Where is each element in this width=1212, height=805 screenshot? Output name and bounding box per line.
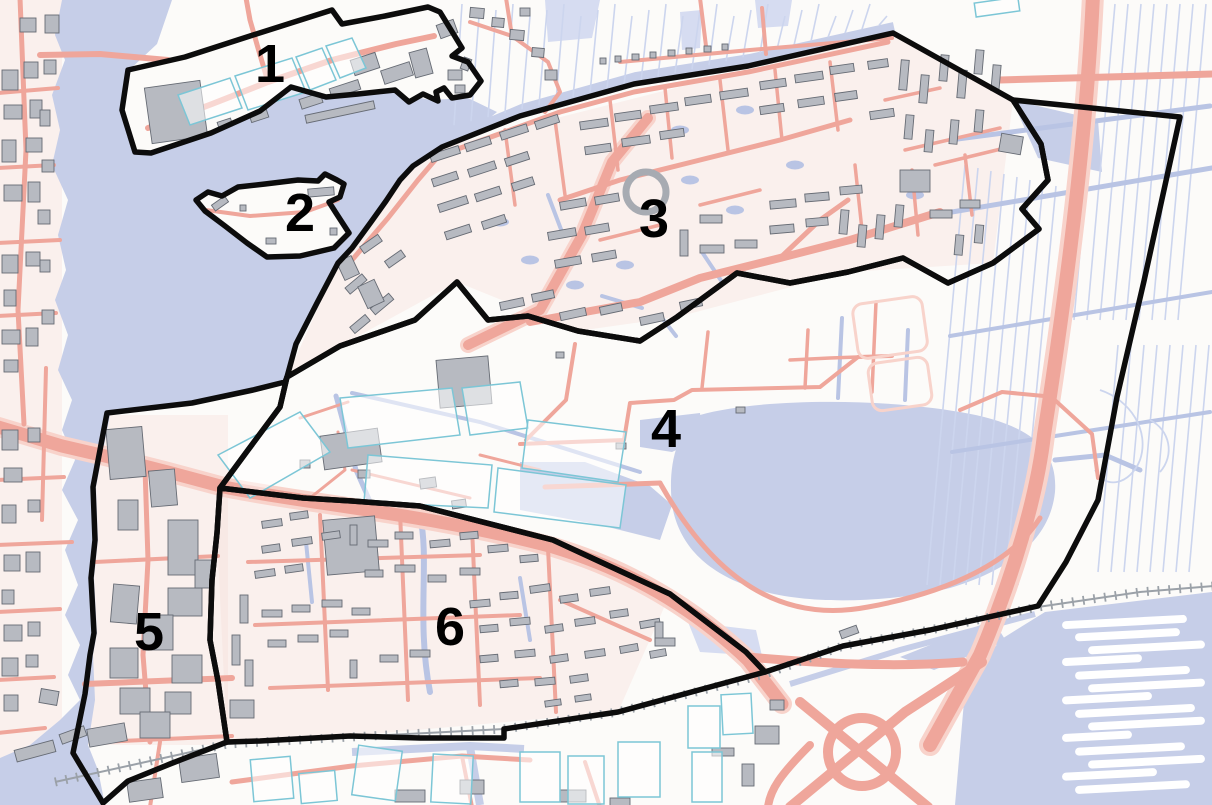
park-outlines [852,295,933,412]
district-label-5: 5 [134,602,164,662]
district-map: 123456 [0,0,1212,805]
district-label-1: 1 [255,34,285,94]
district-label-3: 3 [639,189,669,249]
district-label-6: 6 [435,597,465,657]
map-canvas[interactable]: 123456 [0,0,1212,805]
district-label-4: 4 [651,399,681,459]
district-label-2: 2 [285,183,315,243]
